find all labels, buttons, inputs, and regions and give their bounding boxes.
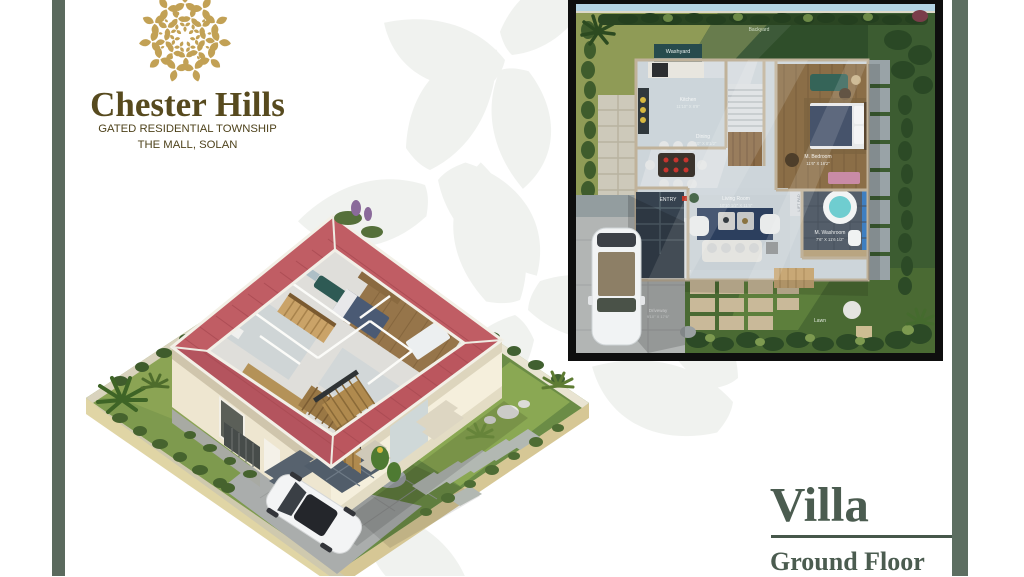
svg-text:Kitchen: Kitchen (680, 97, 697, 103)
svg-text:11'10" X 8'9": 11'10" X 8'9" (676, 104, 700, 109)
svg-text:M. Washroom: M. Washroom (815, 230, 846, 236)
svg-text:Lawn: Lawn (814, 318, 826, 324)
svg-text:ENTRY: ENTRY (660, 197, 678, 203)
svg-text:Backyard: Backyard (749, 27, 770, 33)
svg-text:7'6" X 11'6 1/2": 7'6" X 11'6 1/2" (816, 237, 845, 242)
svg-text:Washyard: Washyard (666, 49, 691, 55)
svg-text:Dining: Dining (696, 134, 710, 140)
